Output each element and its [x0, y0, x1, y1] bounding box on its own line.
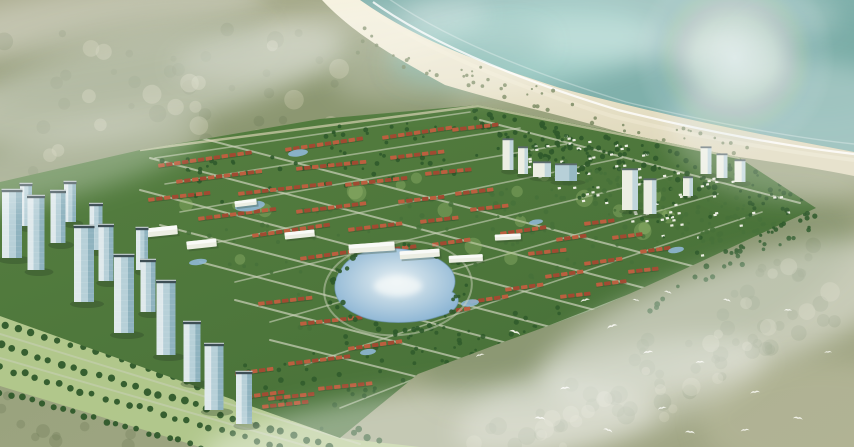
house-roof — [380, 223, 387, 228]
vegetation-clump — [305, 368, 309, 372]
avenue-tree — [56, 380, 63, 387]
vegetation-clump — [445, 227, 448, 230]
tower-face-shade — [247, 374, 252, 424]
avenue-tree — [44, 379, 50, 385]
house-roof — [270, 188, 277, 193]
villa-tree — [564, 134, 567, 137]
vegetation-clump — [541, 92, 544, 95]
vegetation-clump — [475, 154, 478, 157]
vegetation-clump — [243, 363, 247, 367]
house-roof — [369, 180, 376, 185]
avenue-tree — [51, 404, 57, 410]
vegetation-clump — [413, 361, 417, 365]
house-roof — [304, 208, 311, 213]
house-roof — [222, 213, 229, 218]
vegetation-clump — [527, 132, 530, 135]
tower-cap-highlight — [156, 280, 176, 281]
house-roof — [390, 155, 397, 160]
avenue-tree — [21, 349, 28, 356]
vegetation-clump — [378, 370, 382, 374]
tower-face-shade — [39, 198, 44, 270]
lake-rim-tree — [403, 242, 407, 246]
lake-rim-tree — [348, 315, 352, 319]
house-roof — [360, 160, 367, 164]
vegetation-clump — [530, 152, 533, 155]
house-roof — [310, 183, 317, 188]
vegetation-clump — [658, 167, 661, 170]
vegetation-clump — [676, 164, 679, 167]
house-roof — [296, 166, 303, 170]
tower-cap-highlight — [140, 259, 156, 260]
house-roof — [312, 358, 319, 363]
house-roof — [304, 166, 311, 170]
vegetation-clump — [723, 249, 728, 254]
vegetation-clump — [786, 236, 791, 241]
house-roof — [455, 191, 462, 196]
vegetation-clump — [675, 225, 680, 230]
house-roof — [612, 280, 619, 285]
house-roof — [269, 207, 276, 212]
vegetation-clump — [712, 184, 718, 190]
house-roof — [628, 269, 635, 273]
vegetation-clump — [186, 168, 190, 172]
villa-roof — [666, 217, 669, 220]
house-roof — [308, 392, 315, 396]
vegetation-clump — [421, 350, 424, 353]
vegetation-clump — [585, 179, 589, 183]
vegetation-clump — [345, 341, 349, 345]
villa-roof — [596, 194, 599, 197]
vegetation-clump — [656, 240, 659, 243]
villa-roof — [674, 204, 677, 207]
vegetation-clump — [400, 217, 403, 220]
tower-face-light — [28, 198, 34, 270]
tower-cap-highlight — [204, 343, 224, 344]
house-roof — [300, 393, 307, 397]
vegetation-clump — [513, 311, 518, 316]
villa-tree — [656, 220, 659, 223]
vegetation-clump — [337, 234, 340, 237]
tower-face-light — [51, 193, 56, 243]
house-roof — [278, 402, 285, 407]
lake-rim-tree — [335, 305, 339, 309]
commercial-slab — [449, 254, 485, 265]
tower-face-light — [141, 262, 146, 312]
vegetation-clump — [502, 95, 506, 99]
vegetation-clump — [198, 170, 203, 175]
tower-cap-highlight — [74, 225, 95, 226]
vegetation-clump — [337, 372, 342, 377]
vegetation-clump — [453, 346, 456, 349]
avenue-tree — [181, 397, 189, 405]
vegetation-clump — [596, 145, 601, 150]
avenue-tree — [96, 372, 102, 378]
vegetation-clump — [511, 186, 522, 197]
vegetation-clump — [736, 207, 740, 211]
avenue-tree — [68, 342, 74, 348]
house-roof — [344, 161, 351, 165]
house-roof — [438, 195, 445, 199]
tower-face-shade — [195, 324, 200, 382]
vegetation-clump — [589, 177, 593, 181]
villa-tree — [699, 236, 703, 240]
vegetation-clump — [723, 202, 727, 206]
vegetation-clump — [555, 194, 558, 197]
lake-rim-tree — [411, 327, 416, 332]
villa-tree — [703, 182, 707, 186]
lake-rim-tree — [374, 322, 379, 327]
house-roof — [164, 195, 171, 200]
avenue-tree — [154, 391, 161, 398]
avenue-tree — [160, 411, 167, 418]
vegetation-clump — [514, 320, 519, 325]
avenue-tree — [103, 396, 109, 402]
house-roof — [316, 320, 323, 324]
vegetation-clump — [420, 162, 423, 165]
villa-roof — [615, 165, 618, 168]
vegetation-clump — [752, 229, 756, 233]
vegetation-clump — [622, 152, 627, 157]
vegetation-clump — [497, 215, 500, 218]
house-roof — [232, 172, 239, 177]
house-roof — [284, 395, 291, 399]
vegetation-clump — [752, 206, 756, 210]
house-roof — [204, 191, 211, 196]
vegetation-clump — [379, 153, 382, 156]
house-roof — [262, 189, 269, 194]
house-roof — [398, 154, 405, 159]
house-roof — [636, 232, 643, 237]
house-roof — [360, 201, 367, 206]
house-roof — [372, 224, 379, 229]
vegetation-clump — [662, 138, 666, 142]
vegetation-clump — [670, 188, 673, 191]
vegetation-clump — [363, 388, 368, 393]
vegetation-clump — [704, 263, 710, 269]
vegetation-clump — [528, 150, 531, 153]
vegetation-clump — [684, 171, 690, 177]
vegetation-clump — [363, 127, 368, 132]
tower-cap-highlight — [136, 227, 149, 228]
house-roof — [494, 204, 501, 209]
vegetation-clump — [375, 161, 380, 166]
vegetation-clump — [490, 116, 494, 120]
villa-roof — [588, 157, 591, 160]
vegetation-clump — [550, 222, 554, 226]
vegetation-clump — [687, 222, 690, 225]
vegetation-clump — [779, 243, 782, 246]
vegetation-clump — [550, 188, 553, 191]
vegetation-clump — [481, 334, 486, 339]
villa-tree — [708, 215, 712, 219]
vegetation-clump — [641, 163, 646, 168]
house-roof — [644, 268, 651, 272]
vegetation-clump — [475, 215, 478, 218]
avenue-tree — [22, 369, 29, 376]
house-roof — [298, 297, 305, 302]
house-roof — [254, 189, 261, 194]
vegetation-clump — [538, 152, 543, 157]
house-roof — [306, 296, 313, 301]
villa-roof — [558, 187, 561, 190]
house-roof — [246, 190, 253, 195]
vegetation-clump — [805, 216, 810, 221]
glow-core — [680, 30, 790, 86]
villa-roof — [529, 160, 532, 163]
tower-face-shade — [151, 262, 156, 312]
house-roof — [652, 267, 659, 271]
house-roof — [361, 180, 368, 185]
villa-roof — [740, 224, 743, 227]
vegetation-clump — [434, 331, 438, 335]
vegetation-clump — [535, 195, 539, 199]
midrise-side — [690, 178, 694, 196]
vegetation-clump — [622, 124, 625, 127]
villa-tree — [665, 214, 668, 217]
villa-roof — [752, 212, 755, 215]
tower-cap-highlight — [89, 203, 103, 204]
vegetation-clump — [602, 188, 607, 193]
villa-roof — [591, 191, 594, 194]
vegetation-clump — [474, 349, 477, 352]
house-roof — [584, 292, 591, 297]
vegetation-clump — [491, 227, 495, 231]
house-roof — [216, 174, 223, 179]
lake-rim-tree — [376, 327, 382, 333]
house-roof — [148, 197, 155, 202]
vegetation-clump — [594, 116, 597, 119]
vegetation-clump — [242, 265, 246, 269]
vegetation-clump — [31, 433, 39, 441]
house-roof — [288, 361, 295, 366]
house-roof — [428, 218, 435, 223]
vegetation-clump — [16, 420, 25, 429]
house-roof — [608, 218, 615, 223]
aerial-rendering — [0, 0, 854, 447]
vegetation-clump — [675, 177, 681, 183]
vegetation-clump — [668, 177, 672, 181]
house-roof — [326, 385, 333, 389]
house-roof — [502, 204, 509, 209]
lake-rim-tree — [427, 323, 432, 328]
vegetation-clump — [762, 242, 766, 246]
vegetation-clump — [366, 355, 369, 358]
avenue-tree — [27, 329, 34, 336]
vegetation-clump — [653, 156, 658, 161]
vegetation-clump — [186, 230, 191, 235]
house-roof — [172, 195, 179, 200]
vegetation-clump — [373, 386, 377, 390]
house-roof — [188, 193, 195, 198]
vegetation-clump — [362, 393, 367, 398]
vegetation-clump — [655, 143, 660, 148]
avenue-tree — [147, 406, 153, 412]
vegetation-clump — [630, 260, 634, 264]
avenue-tree — [104, 419, 111, 426]
avenue-tree — [39, 400, 45, 406]
vegetation-clump — [587, 145, 592, 150]
vegetation-clump — [434, 126, 437, 129]
house-roof — [449, 169, 456, 173]
house-roof — [238, 191, 245, 196]
vegetation-clump — [617, 160, 622, 165]
vegetation-clump — [748, 196, 751, 199]
house-roof — [465, 167, 472, 171]
vegetation-clump — [410, 350, 415, 355]
villa-roof — [588, 141, 591, 144]
vegetation-clump — [511, 243, 515, 247]
villa-roof — [631, 220, 634, 223]
vegetation-clump — [263, 385, 268, 390]
avenue-tree — [193, 401, 199, 407]
vegetation-clump — [419, 213, 424, 218]
vegetation-clump — [600, 154, 605, 159]
vegetation-clump — [554, 158, 557, 161]
vegetation-clump — [734, 195, 739, 200]
house-roof — [487, 187, 494, 192]
vegetation-clump — [523, 330, 526, 333]
villa-tree — [578, 196, 582, 200]
villa-roof — [680, 223, 683, 226]
vegetation-clump — [696, 205, 700, 209]
house-roof — [486, 205, 493, 210]
vegetation-clump — [477, 338, 480, 341]
avenue-tree — [41, 334, 48, 341]
avenue-tree — [183, 417, 189, 423]
lake-rim-tree — [328, 300, 332, 304]
vegetation-clump — [608, 213, 610, 215]
vegetation-clump — [734, 250, 738, 254]
vegetation-clump — [561, 138, 564, 141]
vegetation-clump — [285, 261, 288, 264]
midrise-cap — [518, 146, 528, 148]
vegetation-clump — [339, 150, 342, 153]
vegetation-clump — [220, 200, 224, 204]
vegetation-clump — [52, 432, 61, 441]
avenue-tree — [2, 322, 9, 329]
villa-roof — [670, 224, 673, 227]
avenue-tree — [132, 383, 139, 390]
villa-roof — [586, 193, 589, 196]
vegetation-clump — [260, 223, 265, 228]
vegetation-clump — [541, 137, 545, 141]
vegetation-clump — [551, 89, 555, 93]
house-roof — [476, 124, 483, 129]
vegetation-clump — [504, 209, 507, 212]
villa-tree — [749, 213, 753, 217]
vegetation-clump — [742, 208, 745, 211]
vegetation-clump — [587, 188, 591, 192]
vegetation-clump — [422, 135, 425, 138]
vegetation-clump — [277, 368, 282, 373]
house-roof — [200, 176, 207, 181]
lake-rim-tree — [407, 243, 410, 246]
vegetation-clump — [254, 116, 265, 127]
vegetation-clump — [505, 188, 508, 191]
vegetation-clump — [704, 229, 709, 234]
house-roof — [320, 164, 327, 168]
lake-rim-tree — [336, 268, 339, 271]
tower-face-shade — [170, 283, 176, 355]
vegetation-clump — [738, 227, 741, 230]
avenue-tree — [219, 427, 225, 433]
vegetation-clump — [528, 138, 532, 142]
avenue-tree — [175, 436, 181, 442]
vegetation-clump — [614, 209, 617, 212]
vegetation-clump — [806, 228, 811, 233]
vegetation-clump — [637, 202, 643, 208]
house-roof — [484, 124, 491, 129]
house-roof — [328, 205, 335, 210]
house-roof — [344, 203, 351, 208]
house-roof — [224, 173, 231, 178]
vegetation-clump — [608, 180, 613, 185]
house-roof — [470, 207, 477, 212]
avenue-tree — [80, 369, 87, 376]
vegetation-clump — [709, 211, 713, 215]
lake-rim-tree — [345, 266, 349, 270]
house-roof — [336, 355, 343, 360]
house-roof — [393, 177, 400, 182]
villa-roof — [645, 220, 648, 223]
avenue-tree — [108, 375, 115, 382]
vegetation-clump — [599, 171, 603, 175]
villa-roof — [715, 212, 718, 215]
house-roof — [410, 244, 417, 249]
house-roof — [398, 199, 405, 203]
villa-tree — [571, 144, 574, 147]
vegetation-clump — [307, 293, 311, 297]
vegetation-clump — [638, 190, 642, 194]
vegetation-clump — [668, 149, 672, 153]
house-roof — [422, 197, 429, 201]
vegetation-clump — [473, 116, 477, 120]
villa-roof — [701, 254, 704, 257]
house-roof — [266, 300, 273, 305]
vegetation-clump — [700, 218, 704, 222]
house-roof — [336, 204, 343, 209]
vegetation-clump — [798, 218, 802, 222]
midrise-cap — [503, 138, 514, 140]
house-roof — [468, 125, 475, 130]
lake-rim-tree — [454, 295, 458, 299]
villa-roof — [663, 175, 666, 178]
vegetation-clump — [380, 358, 384, 362]
house-roof — [430, 151, 437, 156]
villa-roof — [572, 139, 575, 142]
vegetation-clump — [442, 158, 445, 161]
avenue-tree — [60, 406, 66, 412]
villa-roof — [546, 145, 549, 148]
vegetation-clump — [504, 252, 517, 265]
vegetation-clump — [347, 388, 351, 392]
avenue-tree — [54, 338, 60, 344]
vegetation-clump — [641, 144, 644, 147]
avenue-tree — [31, 375, 37, 381]
house-roof — [276, 395, 283, 399]
vegetation-clump — [279, 116, 287, 124]
house-roof — [294, 401, 301, 406]
vegetation-clump — [297, 293, 300, 296]
vegetation-clump — [661, 196, 666, 201]
house-roof — [406, 198, 413, 202]
house-roof — [328, 356, 335, 361]
villa-tree — [592, 186, 594, 188]
house-roof — [312, 165, 319, 169]
lake-rim-tree — [353, 317, 358, 322]
house-roof — [247, 170, 254, 175]
house-roof — [444, 216, 451, 221]
